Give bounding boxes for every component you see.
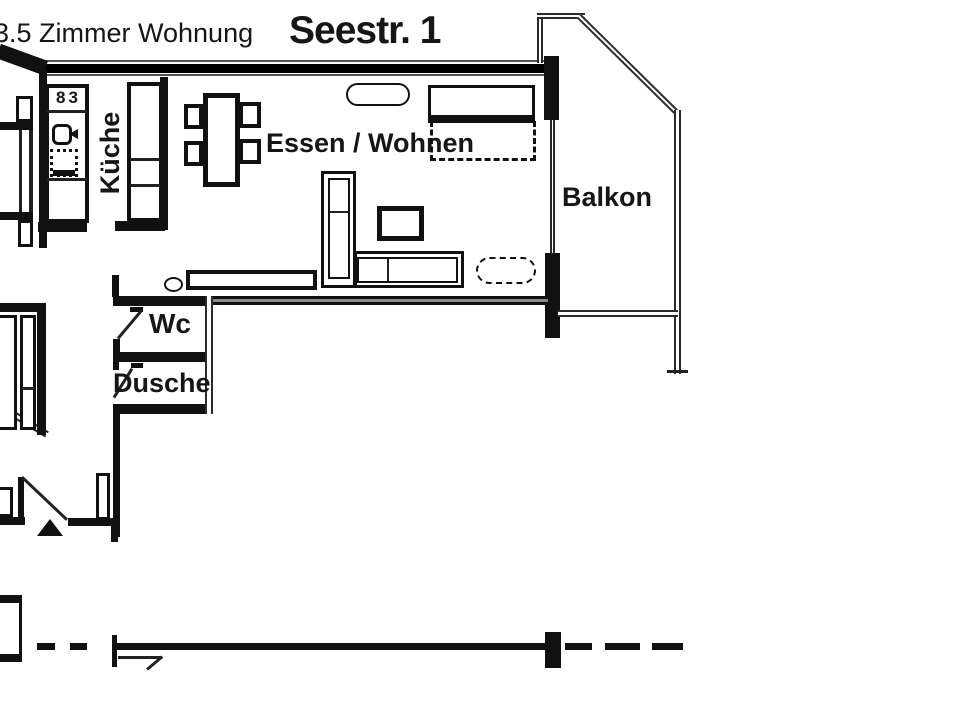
dining-chair	[239, 139, 261, 164]
wall-pillar-top-right	[544, 56, 559, 120]
sofa-cushion-divider	[330, 211, 348, 213]
balcony-bottom-edge	[558, 310, 678, 317]
left-window-sill-top	[16, 96, 33, 122]
section-dash	[37, 643, 55, 650]
kitchen-cabinet-divider-2	[130, 184, 160, 187]
wall-bottomleft	[0, 517, 25, 525]
dining-chair	[184, 141, 203, 166]
left-window-pane-2	[29, 130, 33, 212]
wall-top	[40, 60, 557, 76]
kitchen-cabinet-column	[127, 82, 163, 222]
entry-cabinet	[0, 487, 13, 517]
section-dash	[605, 643, 640, 650]
balcony-left-edge	[537, 13, 543, 63]
ceiling-lamp	[346, 83, 410, 106]
wall-wc-top	[113, 296, 210, 306]
apartment-type-title: 3.5 Zimmer Wohnung	[0, 18, 253, 49]
sideboard-long	[186, 270, 317, 290]
wardrobe-divider	[22, 387, 34, 390]
left-window-sill-bottom	[18, 220, 33, 247]
entrance-arrow-icon	[37, 519, 63, 536]
kitchen-counter-divider-2	[47, 178, 87, 181]
wall-wc-dusche-divider	[113, 352, 210, 362]
left-window-pane-1	[19, 130, 22, 212]
floor-lamp	[164, 277, 183, 292]
street-title: Seestr. 1	[289, 9, 440, 53]
stove-front-bar	[53, 170, 75, 176]
wall-wc-left-piece	[113, 339, 120, 353]
left-window-bar-1	[0, 122, 33, 130]
wardrobe-right-wall	[37, 303, 46, 435]
sofa-cushion-divider	[387, 259, 389, 281]
room-label-kitchen: Küche	[95, 103, 125, 203]
kitchen-counter-label: 83	[56, 88, 81, 108]
section-block	[545, 632, 561, 668]
wall-kitchen-foot	[38, 222, 87, 232]
left-window-bar-2	[0, 212, 33, 220]
wardrobe-column-left	[0, 315, 17, 430]
balcony-diagonal-edge	[577, 14, 680, 116]
wall-living-bottom	[207, 296, 548, 305]
section-tick	[112, 635, 117, 667]
sofa-vertical-cushions	[328, 178, 350, 279]
section-dash	[652, 643, 683, 650]
section-marker-box	[0, 595, 22, 662]
room-label-balcony: Balkon	[562, 182, 652, 213]
dining-chair	[239, 102, 261, 128]
section-dash	[565, 643, 592, 650]
sideboard-top	[428, 85, 535, 123]
wc-door-swing	[117, 310, 142, 340]
wall-bottomleft-stub	[18, 477, 24, 517]
dining-chair	[184, 104, 203, 129]
section-dash	[70, 643, 87, 650]
wall-cabinet-base	[115, 221, 165, 231]
wardrobe-column-right	[20, 315, 36, 430]
wall-dusche-bottom	[113, 404, 213, 414]
wall-entry-stub	[111, 526, 118, 542]
wall-corridor-left	[113, 413, 120, 537]
section-line-solid	[117, 643, 546, 650]
balcony-right-edge-cap	[667, 370, 688, 373]
room-label-wc: Wc	[149, 308, 191, 340]
pouf	[476, 257, 536, 284]
wall-wc-stub-top	[112, 275, 119, 297]
tv-table	[377, 206, 424, 241]
floor-plan: 3.5 Zimmer Wohnung Seestr. 1	[0, 0, 960, 720]
sink-tap-icon	[69, 129, 78, 139]
sofa-horizontal-cushions	[357, 257, 458, 283]
room-label-shower: Dusche	[113, 368, 211, 399]
balcony-window-line	[550, 120, 555, 253]
dining-table	[203, 93, 240, 187]
kitchen-cabinet-divider-1	[130, 158, 160, 161]
entry-door-swing	[21, 476, 68, 521]
kitchen-counter-divider-1	[47, 110, 87, 113]
balcony-right-edge	[674, 110, 681, 374]
entry-door-leaf	[96, 473, 110, 520]
section-hook-horizontal	[118, 656, 162, 659]
rug-dashed-outline	[430, 121, 536, 161]
